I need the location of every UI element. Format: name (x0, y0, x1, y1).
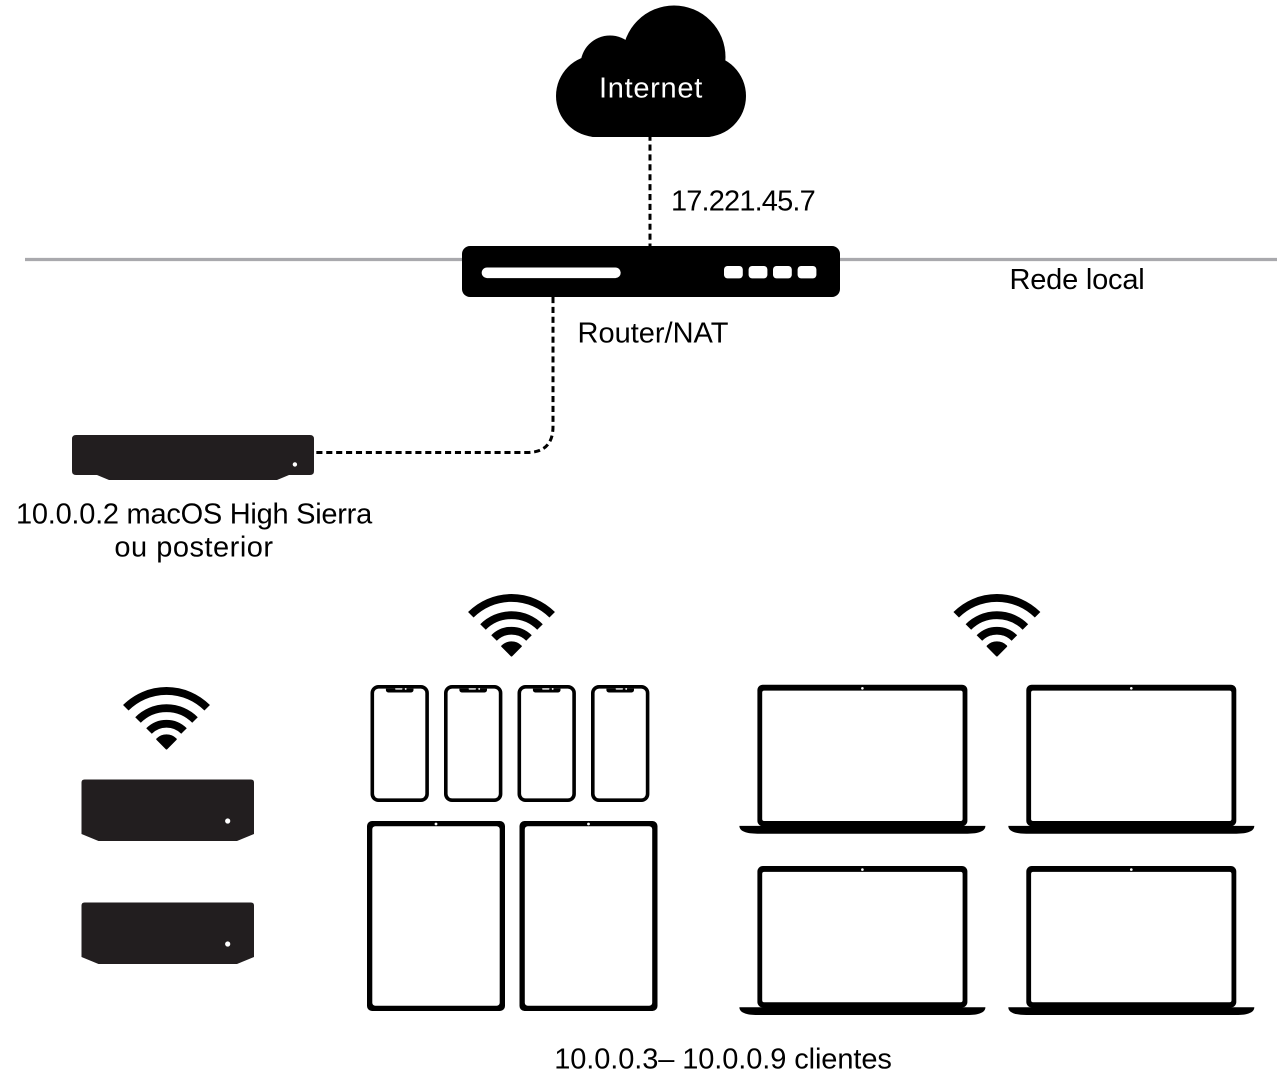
svg-text:17.221.45.7: 17.221.45.7 (671, 185, 815, 217)
svg-text:ou posterior: ou posterior (114, 532, 273, 564)
svg-text:Internet: Internet (599, 72, 703, 104)
svg-text:10.0.0.2 macOS High Sierra: 10.0.0.2 macOS High Sierra (16, 499, 373, 531)
svg-text:10.0.0.3– 10.0.0.9 clientes: 10.0.0.3– 10.0.0.9 clientes (554, 1043, 892, 1075)
svg-text:Router/NAT: Router/NAT (578, 317, 729, 349)
svg-text:Rede local: Rede local (1010, 264, 1145, 296)
